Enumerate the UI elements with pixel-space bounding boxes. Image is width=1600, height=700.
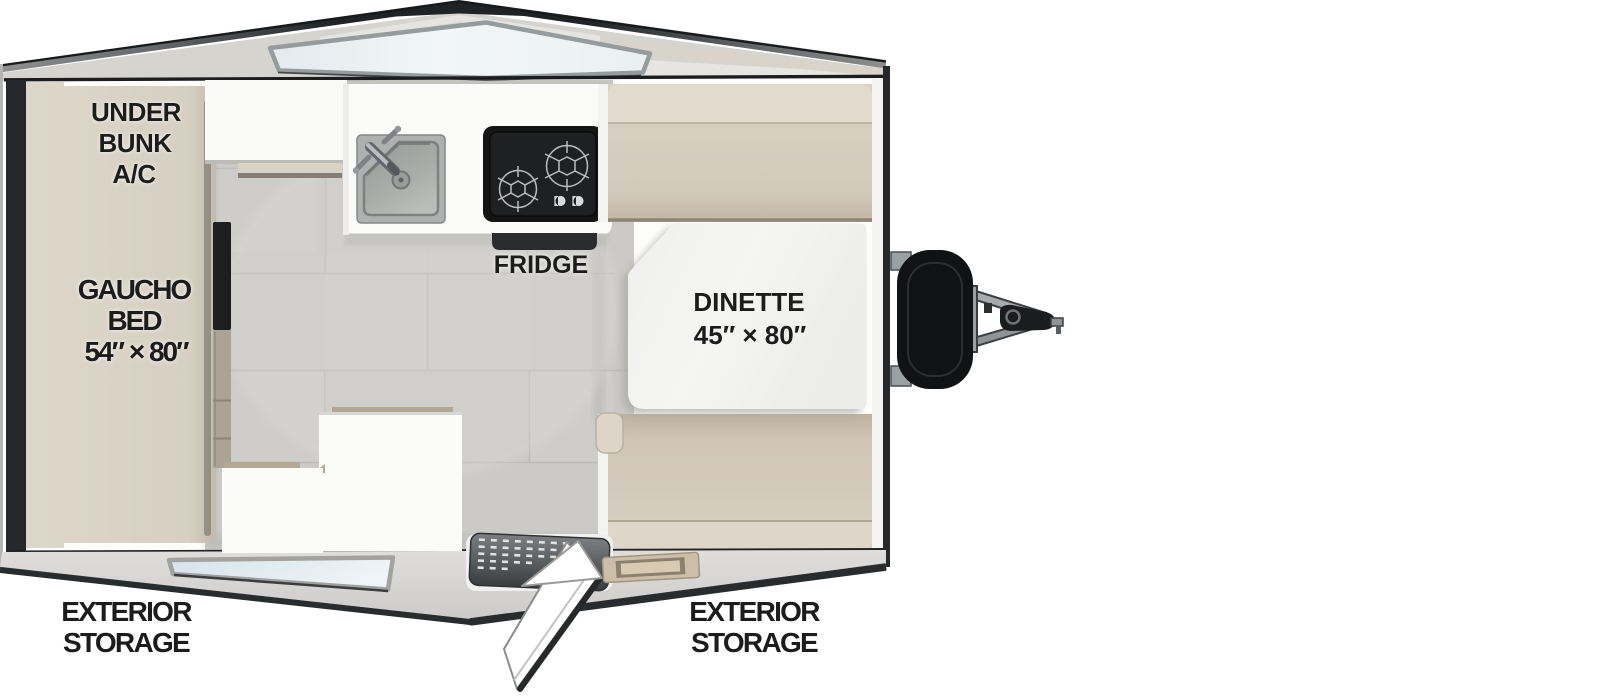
svg-text:GAUCHO: GAUCHO bbox=[78, 274, 192, 305]
svg-text:A/C: A/C bbox=[112, 159, 156, 189]
svg-text:DINETTE: DINETTE bbox=[693, 287, 804, 317]
svg-text:STORAGE: STORAGE bbox=[63, 627, 190, 658]
svg-text:BED: BED bbox=[107, 305, 162, 336]
svg-text:FRIDGE: FRIDGE bbox=[494, 251, 588, 279]
svg-text:45″ × 80″: 45″ × 80″ bbox=[694, 320, 806, 350]
svg-text:54″ × 80″: 54″ × 80″ bbox=[84, 336, 189, 367]
svg-text:BUNK: BUNK bbox=[98, 128, 172, 158]
svg-text:UNDER: UNDER bbox=[91, 97, 182, 127]
svg-text:EXTERIOR: EXTERIOR bbox=[61, 596, 192, 627]
svg-text:EXTERIOR: EXTERIOR bbox=[689, 596, 820, 627]
svg-text:STORAGE: STORAGE bbox=[691, 627, 818, 658]
